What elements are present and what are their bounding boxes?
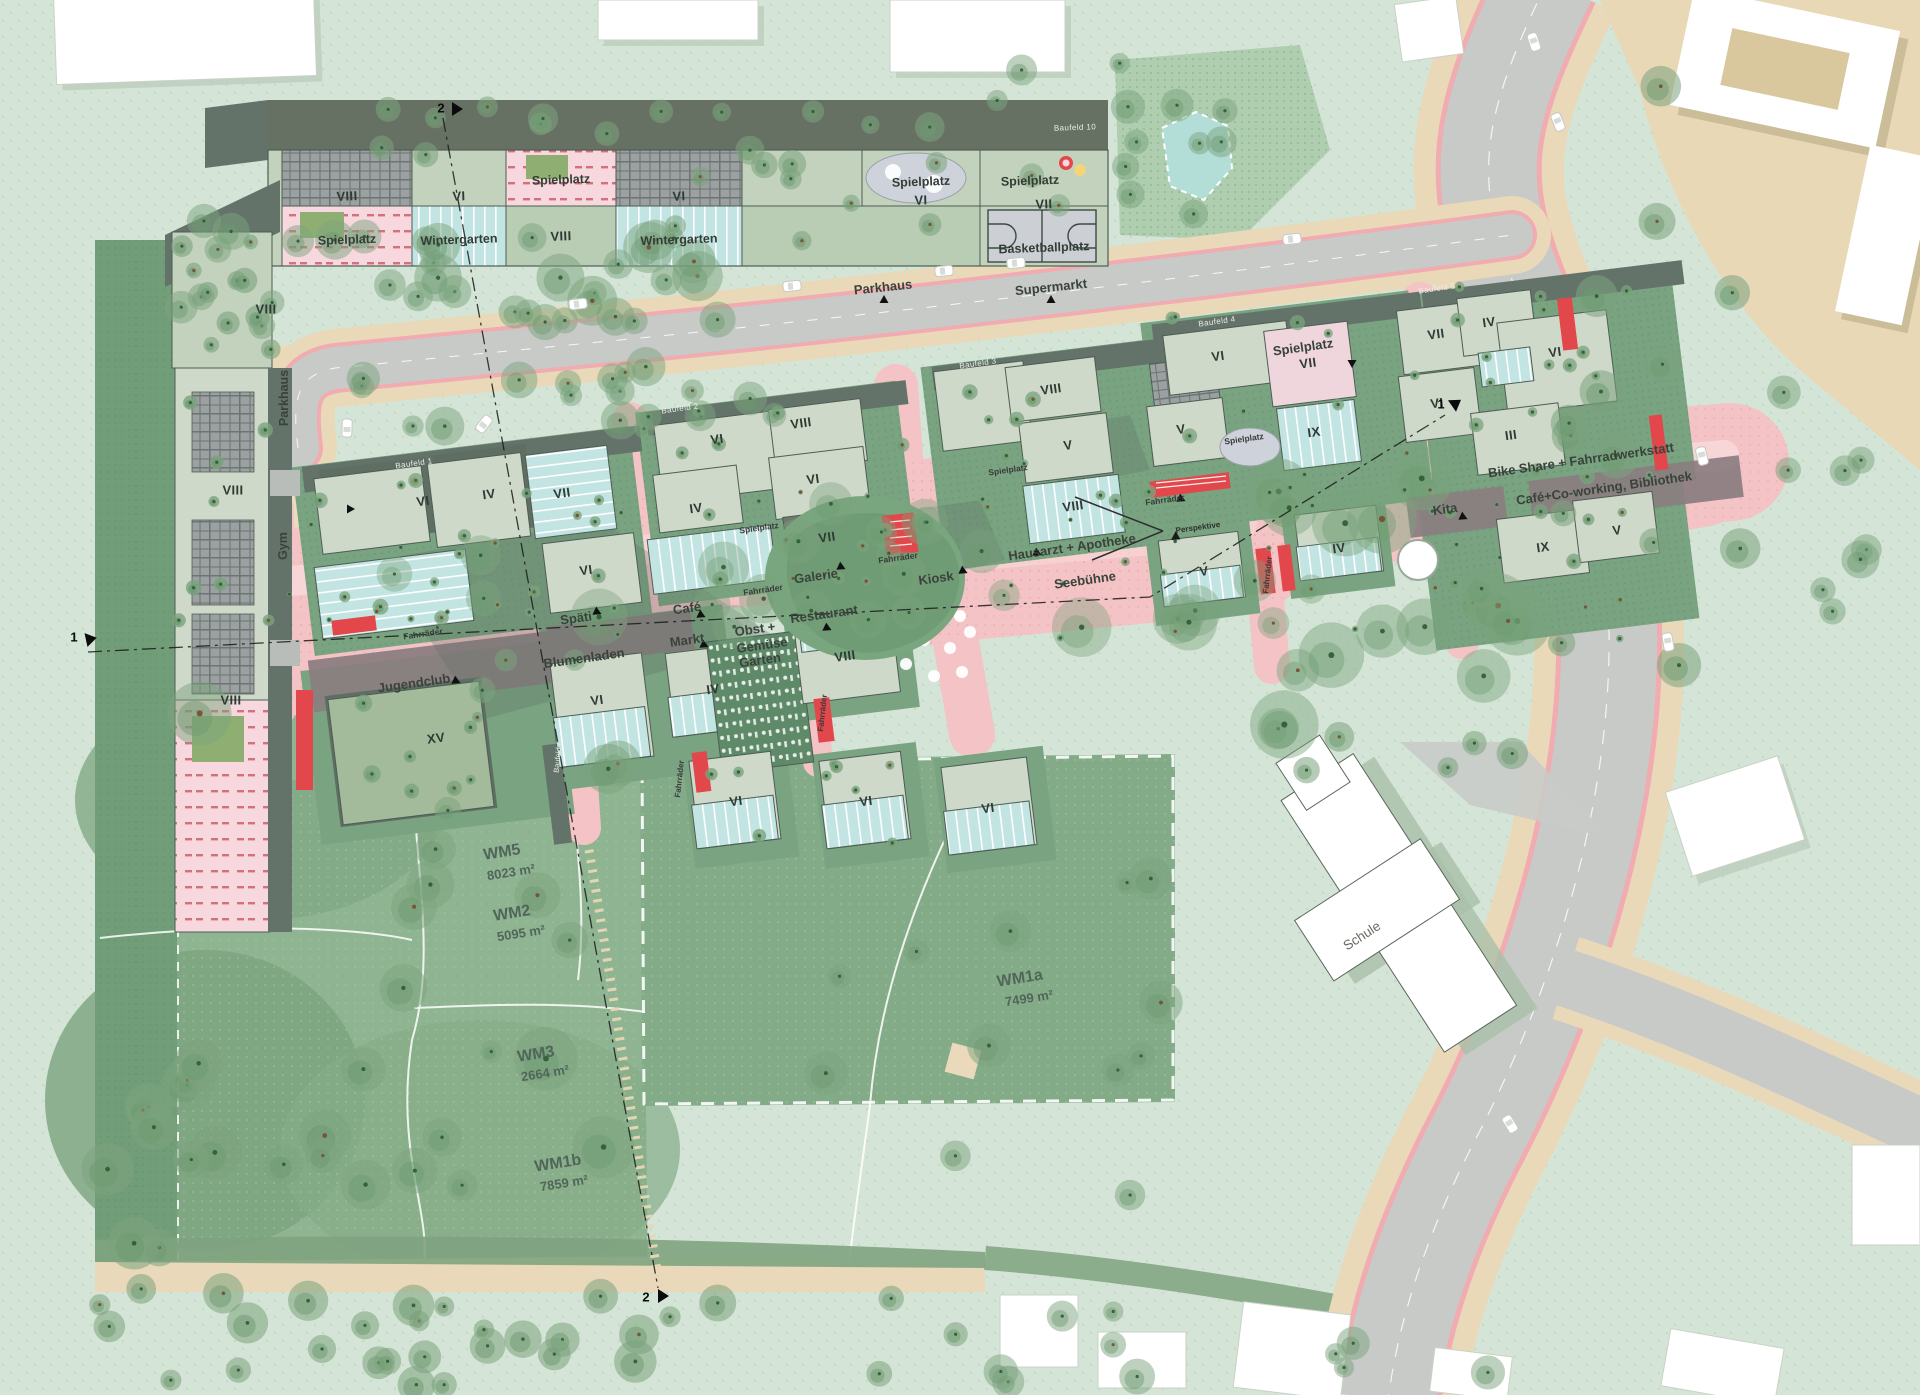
label-obst-: Obst + — [734, 620, 776, 639]
label-baufeld-6: Baufeld 6 — [553, 741, 564, 773]
label-ix: IX — [1307, 425, 1322, 440]
label-spielplatz: Spielplatz — [988, 463, 1028, 477]
label-7859-m-: 7859 m² — [539, 1173, 589, 1193]
label-iv: IV — [482, 487, 497, 502]
label-viii: VIII — [336, 189, 358, 203]
label-v: V — [1176, 422, 1187, 436]
label-baufeld-10: Baufeld 10 — [1054, 123, 1097, 132]
label-wm3: WM3 — [516, 1044, 555, 1066]
label-vi: VI — [859, 794, 874, 809]
label-vii: VII — [1427, 326, 1446, 341]
label-vii: VII — [1299, 355, 1318, 370]
labels-overlay: VIIISpielplatzVIWintergartenSpielplatzVI… — [0, 0, 1920, 1395]
label-iv: IV — [689, 501, 704, 516]
label-parkhaus: Parkhaus — [853, 277, 913, 296]
label-basketballplatz: Basketballplatz — [998, 240, 1089, 256]
label-fahrräder: Fahrräder — [1145, 493, 1185, 507]
label-viii: VIII — [220, 694, 241, 707]
label-vii: VII — [1035, 197, 1053, 211]
label-baufeld-5: Baufeld 5 — [1418, 282, 1456, 295]
label-fahrräder: Fahrräder — [817, 694, 829, 732]
site-plan-canvas: VIIISpielplatzVIWintergartenSpielplatzVI… — [0, 0, 1920, 1395]
label-wintergarten: Wintergarten — [640, 232, 717, 247]
label-viii: VIII — [834, 648, 857, 664]
label-schule: Schule — [1341, 919, 1383, 953]
label-1: 1 — [1437, 398, 1444, 411]
label-vi: VI — [729, 794, 744, 809]
label-vi: VI — [416, 494, 431, 509]
label-fahrräder: Fahrräder — [674, 760, 686, 798]
label-vi: VI — [1211, 349, 1226, 364]
label-viii: VIII — [1062, 498, 1085, 514]
label-v: V — [1199, 564, 1210, 578]
label-spielplatz: Spielplatz — [892, 175, 951, 190]
label-viii: VIII — [222, 484, 243, 497]
label-parkhaus: Parkhaus — [278, 370, 291, 426]
label-viii: VIII — [255, 303, 276, 316]
label-baufeld-3: Baufeld 3 — [959, 357, 997, 370]
label-blumenladen: Blumenladen — [543, 646, 626, 670]
label-fahrräder: Fahrräder — [878, 551, 918, 565]
label-gym: Gym — [277, 532, 290, 560]
label-viii: VIII — [550, 229, 572, 243]
label-vi: VI — [1430, 396, 1445, 411]
label-viii: VIII — [790, 415, 813, 431]
label-vi: VI — [590, 693, 605, 708]
label-markt: Markt — [669, 631, 705, 649]
label-xv: XV — [426, 730, 446, 745]
label-vi: VI — [914, 193, 928, 206]
label-fahrräder: Fahrräder — [403, 627, 443, 641]
label-kita: Kita — [1432, 501, 1458, 517]
label-spielplatz: Spielplatz — [1224, 432, 1264, 446]
label-vi: VI — [672, 189, 686, 202]
label-vi: VI — [981, 801, 996, 816]
label-caf-co-working-bibliothek: Café+Co-working, Bibliothek — [1515, 469, 1692, 507]
label-spielplatz: Spielplatz — [318, 233, 377, 248]
label-spielplatz: Spielplatz — [1001, 174, 1060, 189]
label-garten: Garten — [738, 651, 781, 670]
label-vi: VI — [806, 472, 821, 487]
label-wm2: WM2 — [492, 903, 531, 925]
label-2: 2 — [437, 102, 444, 115]
label-v: V — [1612, 523, 1623, 537]
label-caf-: Café — [672, 600, 702, 617]
label-2664-m-: 2664 m² — [520, 1063, 570, 1083]
label-spielplatz: Spielplatz — [1272, 336, 1334, 357]
label-perspektive: Perspektive — [1175, 521, 1221, 535]
label-baufeld-4: Baufeld 4 — [1198, 315, 1236, 328]
label-bike-share-fahrradwerkstatt: Bike Share + Fahrradwerkstatt — [1487, 441, 1674, 480]
label-jugendclub: Jugendclub — [377, 671, 451, 694]
label-seebühne: Seebühne — [1053, 569, 1116, 591]
label-wm1a: WM1a — [996, 967, 1044, 990]
label-iv: IV — [1332, 541, 1347, 556]
label-8023-m-: 8023 m² — [486, 862, 536, 882]
label-ix: IX — [1536, 540, 1551, 555]
label-2: 2 — [642, 1291, 649, 1304]
label-hausarzt-apotheke: Hausarzt + Apotheke — [1007, 532, 1136, 563]
label-vi: VI — [452, 189, 466, 202]
label-vii: VII — [553, 485, 572, 500]
label-wm5: WM5 — [482, 842, 521, 864]
label-fahrräder: Fahrräder — [1262, 556, 1274, 594]
label-kiosk: Kiosk — [918, 569, 955, 587]
label-spielplatz: Spielplatz — [739, 521, 779, 535]
label-5095-m-: 5095 m² — [496, 923, 546, 943]
label-viii: VIII — [1040, 381, 1063, 397]
label-supermarkt: Supermarkt — [1014, 277, 1087, 297]
label-galerie: Galerie — [793, 566, 838, 585]
label-gemüse: Gemüse — [736, 635, 789, 655]
label-vi: VI — [1548, 345, 1563, 360]
label-vi: VI — [579, 563, 594, 578]
label-iii: III — [1504, 428, 1518, 443]
label-späti: Späti — [559, 609, 592, 626]
label-iv: IV — [1482, 315, 1497, 330]
label-iv: IV — [706, 682, 721, 697]
label-wm1b: WM1b — [533, 1152, 582, 1175]
label-baufeld-1: Baufeld 1 — [395, 457, 433, 470]
label-fahrräder: Fahrräder — [743, 583, 783, 597]
label-wintergarten: Wintergarten — [420, 232, 497, 247]
label-spielplatz: Spielplatz — [532, 173, 591, 188]
label-1: 1 — [70, 631, 77, 644]
label-7499-m-: 7499 m² — [1004, 988, 1054, 1008]
label-vii: VII — [818, 529, 837, 544]
label-baufeld-2: Baufeld 2 — [661, 402, 699, 415]
label-restaurant: Restaurant — [789, 603, 858, 625]
label-vi: VI — [710, 432, 725, 447]
label-v: V — [1063, 438, 1074, 452]
